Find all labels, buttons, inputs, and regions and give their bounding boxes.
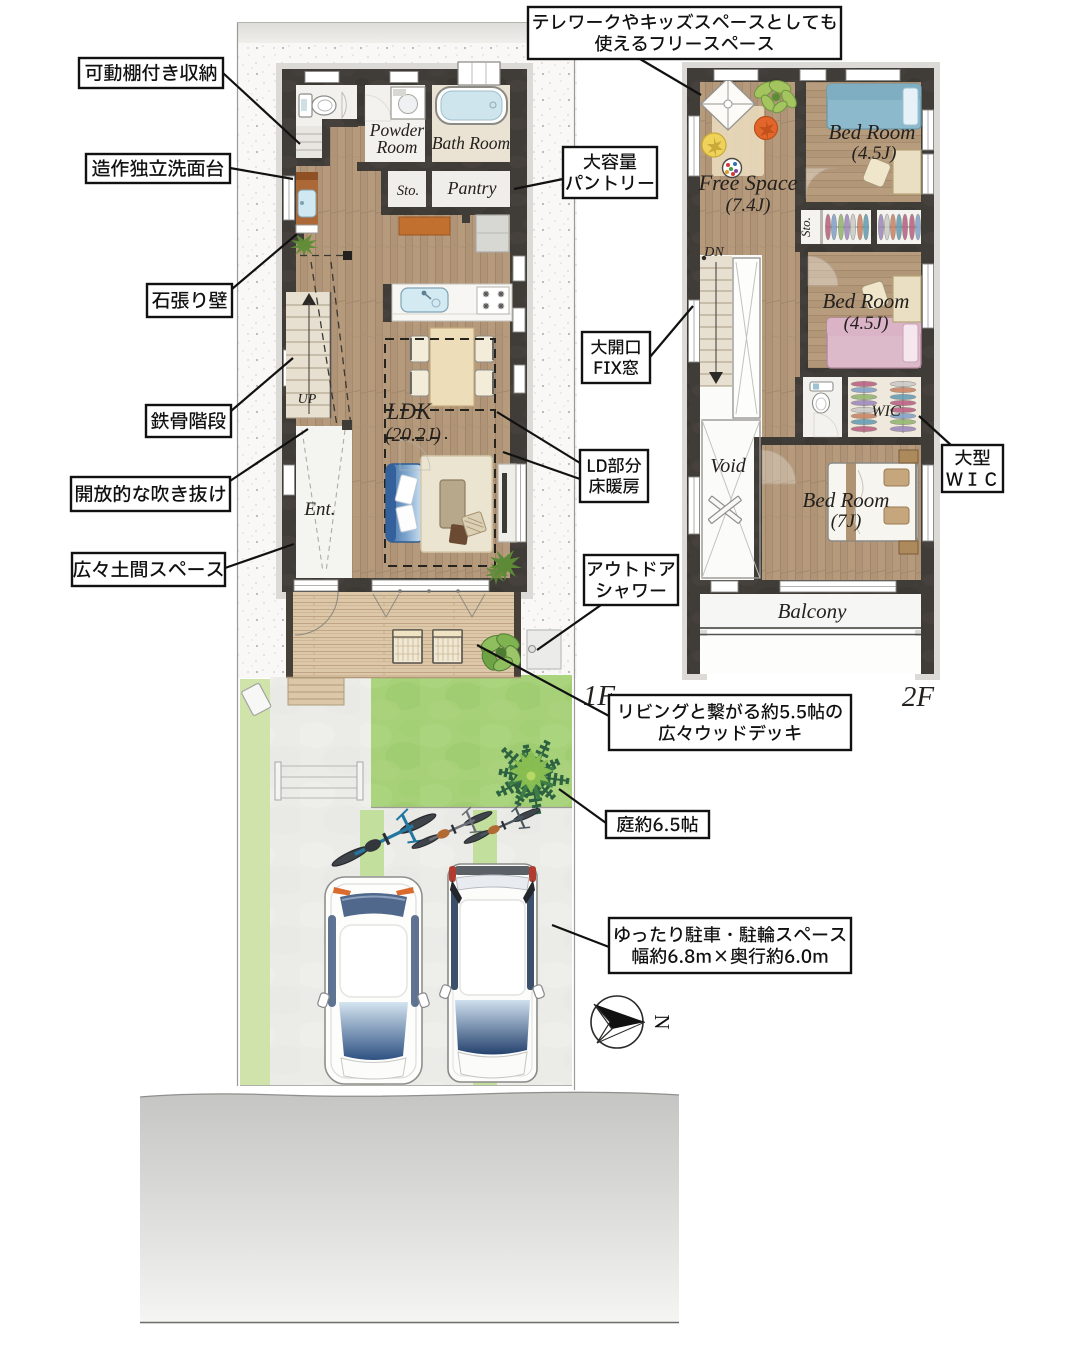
svg-text:Sto.: Sto.	[798, 217, 813, 237]
svg-text:2F: 2F	[902, 681, 935, 713]
svg-text:UP: UP	[298, 392, 317, 407]
svg-text:Balcony: Balcony	[778, 599, 847, 623]
svg-text:Void: Void	[710, 455, 747, 477]
svg-text:Bed Room: Bed Room	[803, 488, 890, 512]
svg-text:(4.5J): (4.5J)	[852, 143, 897, 164]
svg-text:Bed Room: Bed Room	[823, 289, 910, 313]
svg-text:(7J): (7J)	[831, 511, 862, 532]
svg-text:N: N	[650, 1014, 674, 1029]
svg-text:DN: DN	[703, 245, 724, 260]
svg-text:Bath Room: Bath Room	[432, 133, 510, 153]
svg-text:Sto.: Sto.	[397, 183, 419, 199]
svg-text:(4.5J): (4.5J)	[844, 313, 889, 334]
svg-text:Room: Room	[376, 137, 418, 157]
svg-text:Pantry: Pantry	[447, 178, 497, 198]
svg-text:WIC: WIC	[871, 403, 901, 420]
svg-text:Bed Room: Bed Room	[829, 120, 916, 144]
svg-text:Ent.: Ent.	[303, 499, 335, 520]
svg-text:LDK: LDK	[386, 399, 433, 424]
svg-text:Free Space: Free Space	[698, 170, 798, 195]
svg-text:(7.4J): (7.4J)	[726, 195, 771, 216]
